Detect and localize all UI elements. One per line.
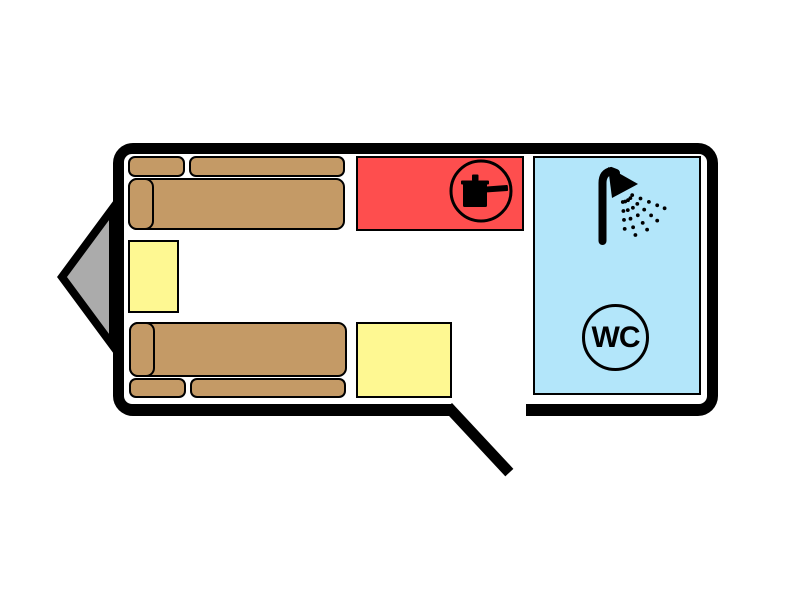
floor-plan: WC: [0, 0, 800, 600]
sofa-bottom-backrest-left: [129, 378, 186, 398]
cabinet-left: [128, 240, 179, 313]
wc-icon: WC: [582, 304, 649, 371]
wc-label: WC: [592, 321, 640, 355]
shower-icon: [590, 165, 670, 245]
sofa-bottom-seat: [129, 322, 347, 377]
sofa-bottom-backrest-right: [190, 378, 346, 398]
sofa-top-seat: [128, 178, 345, 230]
sofa-top-armrest: [128, 178, 154, 230]
sofa-top-backrest-left: [128, 156, 185, 177]
sofa-top-backrest-right: [189, 156, 345, 177]
sofa-bottom-armrest: [129, 322, 155, 377]
shower-spray-dots: [621, 193, 667, 237]
cooking-pot-icon: [448, 158, 514, 224]
table-bottom: [356, 322, 452, 398]
